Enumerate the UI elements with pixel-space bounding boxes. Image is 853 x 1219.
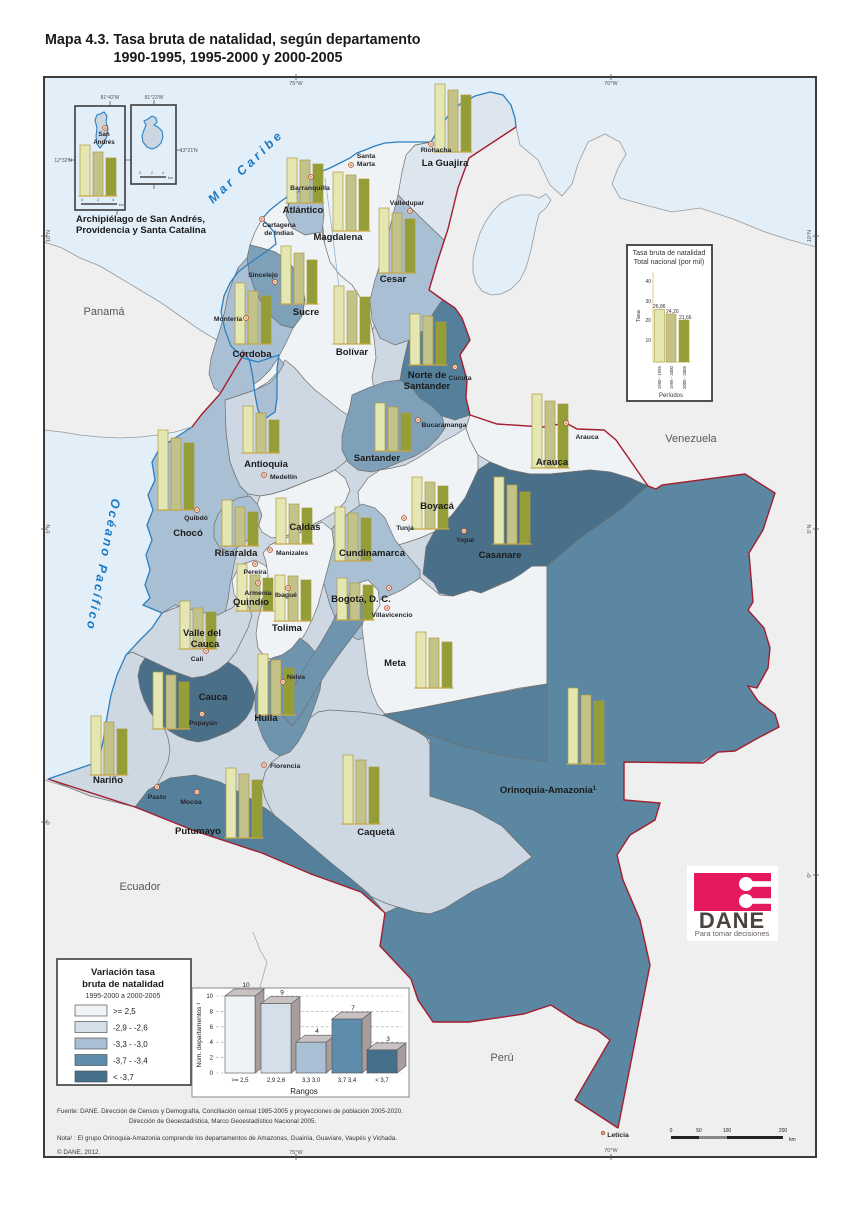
svg-text:Florencia: Florencia bbox=[270, 763, 300, 770]
svg-text:24,20: 24,20 bbox=[666, 309, 679, 315]
svg-text:Riohacha: Riohacha bbox=[421, 147, 452, 154]
svg-text:Norte de: Norte de bbox=[408, 370, 447, 381]
svg-text:Quindío: Quindío bbox=[233, 597, 269, 608]
svg-text:70°W: 70°W bbox=[604, 81, 618, 87]
svg-text:40: 40 bbox=[645, 279, 651, 285]
svg-text:Fuente: DANE. Dirección de Cen: Fuente: DANE. Dirección de Censos y Demo… bbox=[57, 1108, 403, 1115]
svg-text:70°W: 70°W bbox=[604, 1148, 618, 1154]
svg-text:1990-1995, 1995-2000 y 2000-20: 1990-1995, 1995-2000 y 2000-2005 bbox=[114, 50, 343, 66]
svg-text:-2,9 - -2,6: -2,9 - -2,6 bbox=[113, 1024, 148, 1033]
svg-text:Cesar: Cesar bbox=[380, 274, 407, 285]
svg-text:bruta de natalidad: bruta de natalidad bbox=[82, 979, 164, 990]
svg-text:de Indias: de Indias bbox=[264, 230, 294, 237]
svg-text:12°32′N: 12°32′N bbox=[54, 158, 72, 164]
svg-text:0: 0 bbox=[670, 1128, 673, 1134]
svg-text:10: 10 bbox=[206, 994, 213, 1000]
svg-text:1995 - 2000: 1995 - 2000 bbox=[669, 365, 674, 389]
svg-text:0°: 0° bbox=[807, 872, 813, 877]
svg-text:10°N: 10°N bbox=[807, 230, 813, 242]
svg-text:Rangos: Rangos bbox=[290, 1087, 318, 1096]
svg-text:San: San bbox=[98, 131, 110, 138]
svg-text:Valledupar: Valledupar bbox=[390, 200, 425, 207]
svg-text:Tolima: Tolima bbox=[272, 623, 303, 634]
svg-text:4: 4 bbox=[112, 198, 114, 202]
svg-text:Leticia: Leticia bbox=[607, 1132, 629, 1139]
svg-text:3,7 3,4: 3,7 3,4 bbox=[338, 1078, 357, 1084]
svg-text:-3,3 - -3,0: -3,3 - -3,0 bbox=[113, 1040, 148, 1049]
svg-text:Yopal: Yopal bbox=[456, 537, 474, 544]
svg-text:Nota¹ : El grupo Orinoquia-Ama: Nota¹ : El grupo Orinoquia-Amazonia comp… bbox=[57, 1135, 397, 1142]
svg-text:Ibagué: Ibagué bbox=[275, 592, 297, 599]
svg-text:Total nacional (por mil): Total nacional (por mil) bbox=[634, 259, 704, 266]
svg-text:2000 - 2005: 2000 - 2005 bbox=[682, 365, 687, 389]
svg-text:2,9 2,6: 2,9 2,6 bbox=[267, 1078, 286, 1084]
svg-text:13°21′N: 13°21′N bbox=[180, 148, 198, 154]
svg-text:1990 - 1995: 1990 - 1995 bbox=[657, 365, 662, 389]
svg-text:Archipiélago de San Andrés,: Archipiélago de San Andrés, bbox=[76, 214, 205, 225]
svg-text:Andrés: Andrés bbox=[93, 139, 115, 146]
svg-text:Pasto: Pasto bbox=[148, 794, 167, 801]
svg-text:Núm. departamentos ¹: Núm. departamentos ¹ bbox=[196, 1002, 203, 1068]
svg-text:Nariño: Nariño bbox=[93, 775, 123, 786]
svg-text:Manizales: Manizales bbox=[276, 550, 308, 557]
svg-text:Mocoa: Mocoa bbox=[180, 799, 202, 806]
svg-text:4: 4 bbox=[162, 171, 164, 175]
svg-text:Antioquia: Antioquia bbox=[244, 459, 289, 470]
svg-text:4: 4 bbox=[315, 1028, 319, 1035]
svg-text:Risaralda: Risaralda bbox=[215, 548, 258, 559]
svg-text:Montería: Montería bbox=[214, 316, 243, 323]
svg-text:-3,7 - -3,4: -3,7 - -3,4 bbox=[113, 1057, 148, 1066]
svg-text:Meta: Meta bbox=[384, 658, 406, 669]
svg-text:Medellín: Medellín bbox=[270, 474, 297, 481]
svg-text:Tasa bruta de natalidad: Tasa bruta de natalidad bbox=[633, 250, 706, 257]
svg-text:81°42′W: 81°42′W bbox=[101, 95, 120, 101]
svg-text:Panamá: Panamá bbox=[84, 306, 126, 318]
svg-text:Casanare: Casanare bbox=[479, 550, 522, 561]
svg-text:2: 2 bbox=[97, 198, 99, 202]
svg-text:Bucaramanga: Bucaramanga bbox=[422, 422, 467, 429]
svg-text:Orinoquia-Amazonia1: Orinoquia-Amazonia1 bbox=[500, 785, 597, 796]
svg-text:Arauca: Arauca bbox=[575, 434, 598, 441]
svg-text:Chocó: Chocó bbox=[173, 528, 203, 539]
svg-text:Sucre: Sucre bbox=[293, 307, 319, 318]
svg-text:Boyacá: Boyacá bbox=[420, 501, 455, 512]
svg-text:30: 30 bbox=[645, 299, 651, 305]
svg-text:Santa: Santa bbox=[357, 153, 376, 160]
svg-text:Dirección de Geoestadística, M: Dirección de Geoestadística, Marco Geoes… bbox=[129, 1118, 317, 1125]
svg-text:Providencia y Santa Catalina: Providencia y Santa Catalina bbox=[76, 225, 207, 236]
svg-text:Villavicencio: Villavicencio bbox=[371, 612, 412, 619]
svg-text:Tunja: Tunja bbox=[396, 525, 414, 532]
svg-text:Santander: Santander bbox=[354, 453, 401, 464]
svg-text:Ecuador: Ecuador bbox=[120, 881, 161, 893]
svg-text:Períodos: Períodos bbox=[659, 393, 683, 399]
svg-text:9: 9 bbox=[280, 990, 284, 997]
svg-text:75°W: 75°W bbox=[289, 81, 303, 87]
svg-text:Atlántico: Atlántico bbox=[283, 205, 324, 216]
svg-text:3: 3 bbox=[386, 1036, 390, 1043]
svg-text:© DANE, 2012.: © DANE, 2012. bbox=[57, 1148, 100, 1156]
svg-text:Neiva: Neiva bbox=[287, 674, 305, 681]
svg-text:200: 200 bbox=[779, 1128, 788, 1134]
svg-text:Mapa 4.3. Tasa bruta de natali: Mapa 4.3. Tasa bruta de natalidad, según… bbox=[45, 32, 421, 48]
svg-text:Pereira: Pereira bbox=[243, 569, 266, 576]
svg-text:100: 100 bbox=[723, 1128, 732, 1134]
svg-text:Arauca: Arauca bbox=[536, 457, 569, 468]
svg-text:20: 20 bbox=[645, 318, 651, 324]
svg-text:Santander: Santander bbox=[404, 381, 451, 392]
svg-text:Cartagena: Cartagena bbox=[262, 222, 295, 229]
svg-text:Popayán: Popayán bbox=[189, 720, 217, 727]
svg-text:26,86: 26,86 bbox=[653, 304, 666, 310]
svg-text:Cundinamarca: Cundinamarca bbox=[339, 548, 406, 559]
svg-text:Marta: Marta bbox=[357, 161, 375, 168]
svg-text:km: km bbox=[168, 176, 173, 180]
svg-text:Caldas: Caldas bbox=[289, 522, 320, 533]
svg-text:< -3,7: < -3,7 bbox=[113, 1073, 134, 1082]
svg-text:5°N: 5°N bbox=[807, 524, 813, 533]
svg-text:75°W: 75°W bbox=[289, 1150, 303, 1156]
svg-text:Cúcuta: Cúcuta bbox=[448, 375, 471, 382]
svg-text:21,66: 21,66 bbox=[679, 315, 692, 321]
svg-text:Cauca: Cauca bbox=[199, 692, 228, 703]
svg-text:Sincelejo: Sincelejo bbox=[248, 272, 278, 279]
svg-text:La Guajira: La Guajira bbox=[422, 158, 469, 169]
svg-text:Bolívar: Bolívar bbox=[336, 347, 369, 358]
svg-text:1995-2000 a 2000-2005: 1995-2000 a 2000-2005 bbox=[86, 993, 161, 1000]
svg-text:2: 2 bbox=[151, 171, 153, 175]
svg-text:>= 2,5: >= 2,5 bbox=[113, 1007, 136, 1016]
svg-text:Magdalena: Magdalena bbox=[313, 232, 363, 243]
svg-text:Huila: Huila bbox=[254, 713, 278, 724]
svg-text:Putumayo: Putumayo bbox=[175, 826, 221, 837]
svg-text:7: 7 bbox=[351, 1005, 355, 1012]
svg-text:Perú: Perú bbox=[490, 1052, 513, 1064]
svg-text:< 3,7: < 3,7 bbox=[375, 1078, 389, 1084]
svg-text:10: 10 bbox=[242, 982, 250, 989]
svg-text:0: 0 bbox=[139, 171, 141, 175]
svg-text:Córdoba: Córdoba bbox=[232, 349, 272, 360]
svg-text:Cauca: Cauca bbox=[191, 639, 220, 650]
svg-text:km: km bbox=[789, 1137, 796, 1143]
svg-text:Cali: Cali bbox=[191, 656, 204, 663]
svg-text:km: km bbox=[119, 203, 124, 207]
svg-text:3,3 3,0: 3,3 3,0 bbox=[302, 1078, 321, 1084]
svg-text:Venezuela: Venezuela bbox=[665, 433, 717, 445]
svg-text:Valle del: Valle del bbox=[183, 628, 221, 639]
svg-text:Tasa: Tasa bbox=[636, 309, 642, 322]
svg-text:Barranquilla: Barranquilla bbox=[290, 185, 330, 192]
svg-text:Caquetá: Caquetá bbox=[357, 827, 395, 838]
svg-text:Para tomar decisiones: Para tomar decisiones bbox=[695, 929, 770, 938]
svg-text:Armenia: Armenia bbox=[244, 590, 271, 597]
svg-text:>= 2,5: >= 2,5 bbox=[231, 1078, 249, 1084]
svg-text:Bogotá, D. C.: Bogotá, D. C. bbox=[331, 594, 391, 605]
svg-text:Variación tasa: Variación tasa bbox=[91, 967, 156, 978]
svg-text:10: 10 bbox=[645, 338, 651, 344]
svg-text:0: 0 bbox=[81, 198, 83, 202]
svg-text:50: 50 bbox=[696, 1128, 702, 1134]
svg-text:Quibdó: Quibdó bbox=[184, 515, 208, 522]
